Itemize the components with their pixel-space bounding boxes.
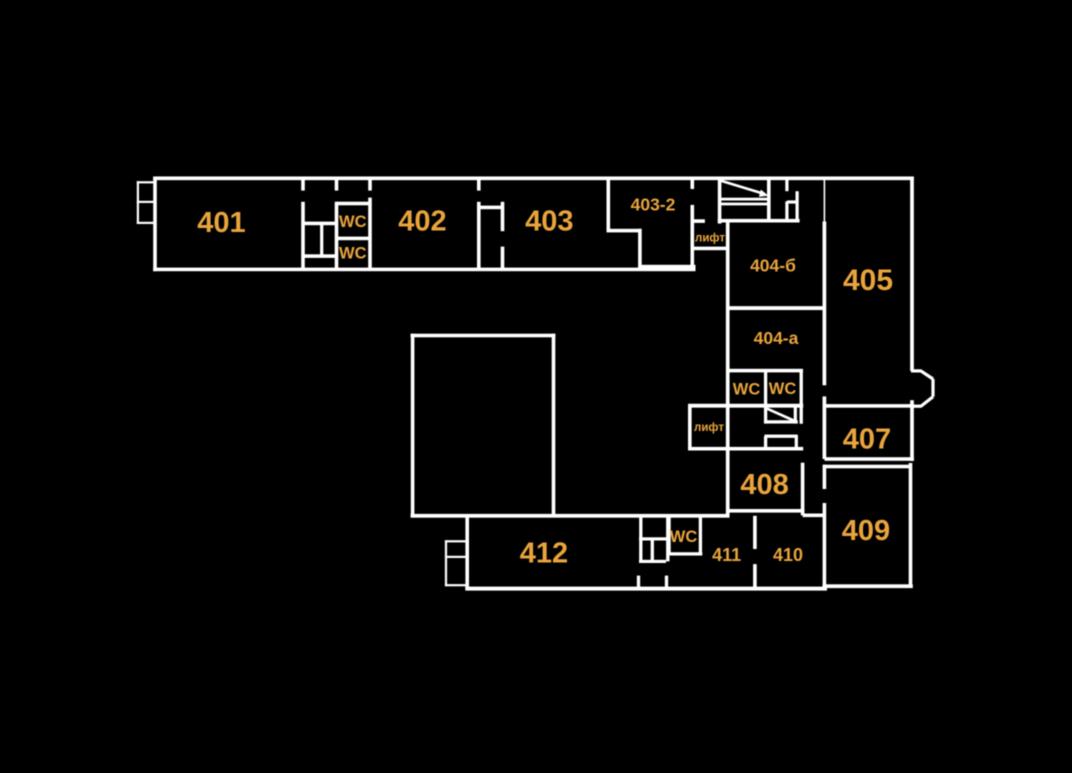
svg-text:404-б: 404-б [750,256,796,276]
svg-text:410: 410 [773,545,803,565]
svg-text:404-а: 404-а [754,328,799,348]
svg-text:412: 412 [520,537,568,569]
svg-text:405: 405 [843,264,893,297]
svg-text:WC: WC [339,244,367,262]
svg-text:WC: WC [733,380,761,398]
svg-text:409: 409 [842,515,890,547]
svg-text:403: 403 [525,205,573,237]
svg-text:408: 408 [740,469,788,501]
svg-text:WC: WC [670,528,698,546]
svg-text:лифт: лифт [694,422,724,434]
svg-text:WC: WC [769,380,797,398]
svg-text:403-2: 403-2 [631,195,676,215]
svg-text:лифт: лифт [695,233,725,245]
svg-text:401: 401 [197,207,245,239]
svg-text:411: 411 [712,545,741,565]
svg-text:WC: WC [339,213,367,231]
svg-text:407: 407 [843,423,891,455]
svg-text:402: 402 [398,205,446,237]
